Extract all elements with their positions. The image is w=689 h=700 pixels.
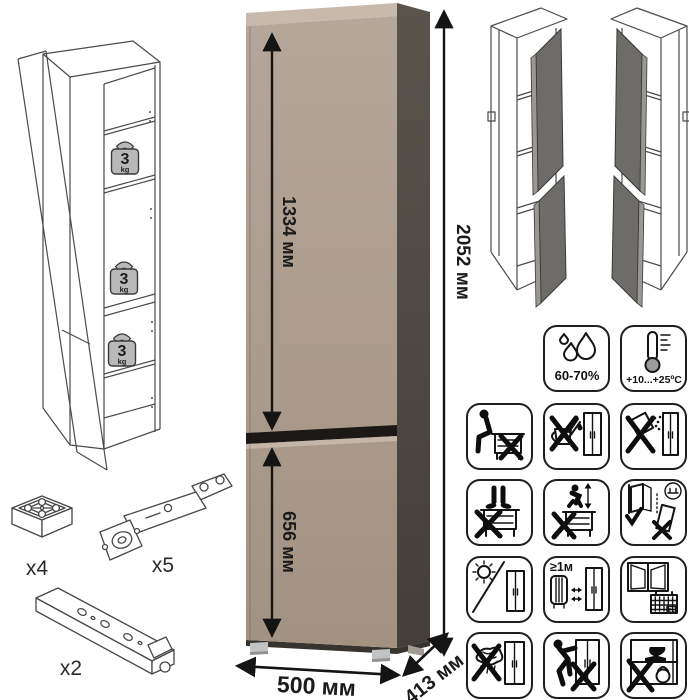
icon-ventilate: 21 [620,556,687,623]
hardware-parts: x4 x5 x2 [12,474,232,680]
anvil-icon [645,647,666,661]
open-cabinet-right [611,8,689,307]
jumping-person-icon [569,483,592,509]
icon-no-wet-cloth [466,632,533,699]
icon-do-not-sit [466,403,533,470]
prohibition-x [628,418,653,451]
hinge-hole-dots [149,111,153,408]
hardware-foot-glide: x4 [12,496,72,580]
open-door-wireframe [18,51,107,470]
icon-do-not-pour [543,403,610,470]
kettlebell-icon [656,667,669,683]
cabinet-side-face [397,3,430,648]
assembled-cabinet-wireframe: 3 kg 3 kg 3 kg [18,41,160,470]
hardware-mounting-rail: x2 [36,588,174,680]
temperature-label: +10...+25ºC [626,374,682,386]
calendar-day-label: 21 [668,608,674,614]
icon-anchor-to-wall [620,479,687,546]
svg-text:2052 мм: 2052 мм [452,224,473,300]
shelf-load-unit: kg [121,165,130,174]
icon-do-not-spill [620,403,687,470]
svg-text:kg: kg [120,285,129,294]
open-doors-cabinet-pair [488,8,689,307]
main-cabinet-render [246,3,430,662]
thermometer-icon [648,332,657,360]
svg-text:656 мм: 656 мм [279,511,299,573]
svg-text:1334 мм: 1334 мм [279,196,299,268]
distance-arrows-icon [571,587,582,601]
rail-qty-label: x2 [60,657,82,680]
icon-heat-distance: ≥1м [543,556,610,623]
icon-do-not-jump [543,479,610,546]
svg-text:413 мм: 413 мм [401,650,469,700]
prohibition-x [501,436,521,458]
open-cabinet-left [488,8,567,307]
cabinet-front-face [246,16,397,648]
shelf-load-badge: 3 kg [111,262,138,294]
magnifier-detail-icon [665,483,681,499]
icon-no-heavy-items [620,632,687,699]
humidity-label: 60-70% [554,368,599,383]
standing-feet-icon [485,488,512,510]
icon-avoid-sunlight [466,556,533,623]
min-distance-label: ≥1м [550,560,573,574]
hinge-qty-label: x5 [152,554,174,577]
pushing-person-icon [553,640,575,685]
shelf-load-badge: 3 kg [109,334,136,366]
svg-text:500 мм: 500 мм [276,671,356,700]
diagram-canvas: 3 kg 3 kg 3 kg [0,0,689,700]
dimension-width: 500 мм [239,666,397,700]
foot-qty-label: x4 [26,557,49,580]
dimension-total-height: 2052 мм [444,13,473,653]
svg-text:kg: kg [118,357,127,366]
prohibition-x [629,661,652,690]
calendar-icon: 21 [651,592,677,614]
icon-no-push [543,632,610,699]
icon-do-not-stand [466,479,533,546]
icon-temperature: +10...+25ºC [620,325,687,392]
shelf-load-badge: 3 kg [112,142,139,174]
sun-icon [473,561,495,583]
hardware-hinge: x5 [100,474,232,577]
prohibition-x [554,514,574,537]
icon-humidity: 60-70% [543,325,610,392]
water-drops-icon [577,333,595,359]
